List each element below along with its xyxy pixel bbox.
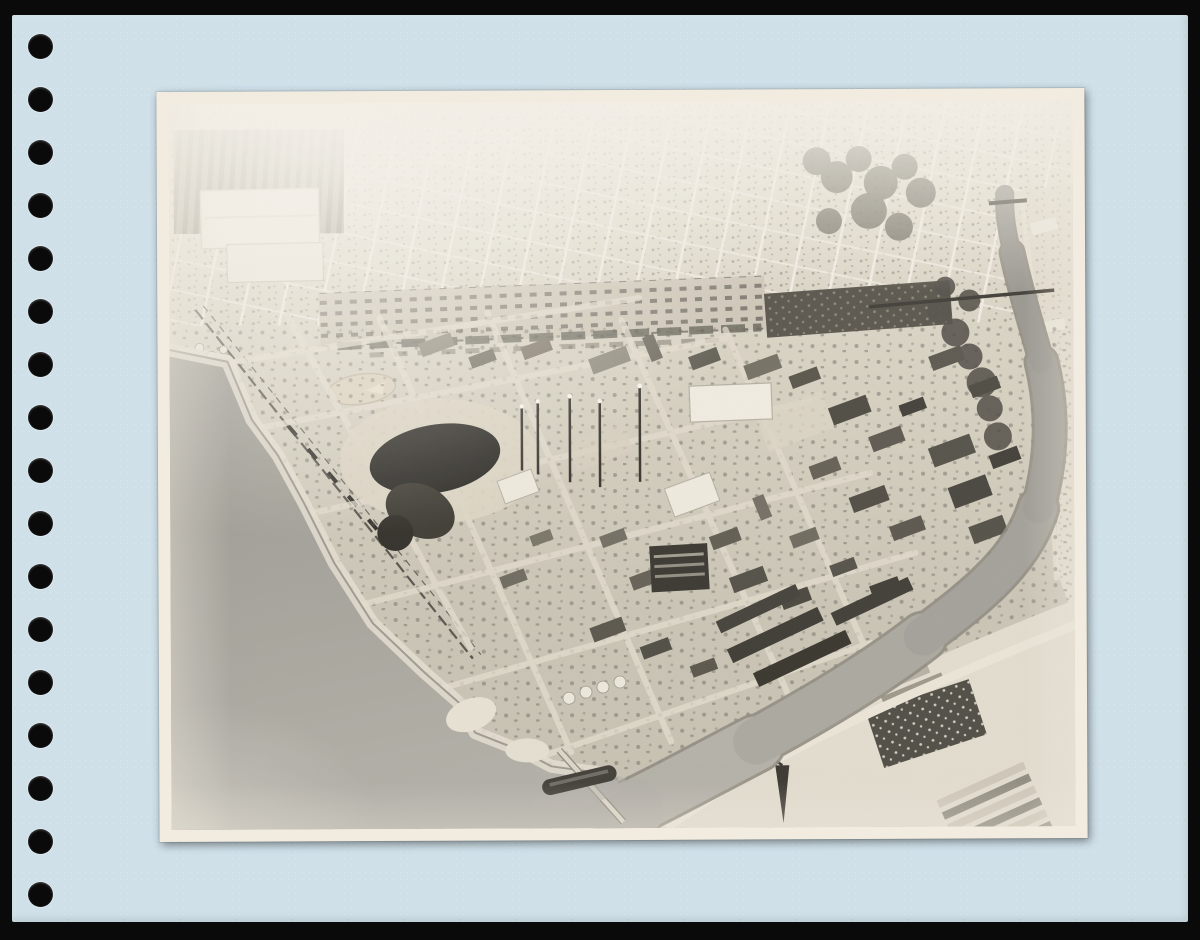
scan-background <box>0 0 1200 940</box>
binder-hole <box>28 299 53 324</box>
binder-hole <box>28 87 53 112</box>
binder-hole-column <box>12 15 68 922</box>
binder-hole <box>28 882 53 907</box>
binder-hole <box>28 564 53 589</box>
binder-hole <box>28 670 53 695</box>
aerial-photograph <box>168 100 1075 830</box>
binder-hole <box>28 829 53 854</box>
binder-hole <box>28 723 53 748</box>
photo-mat <box>156 88 1087 842</box>
binder-hole <box>28 246 53 271</box>
binder-hole <box>28 458 53 483</box>
binder-hole <box>28 617 53 642</box>
binder-hole <box>28 352 53 377</box>
binder-hole <box>28 140 53 165</box>
binder-hole <box>28 405 53 430</box>
binder-hole <box>28 34 53 59</box>
binder-hole <box>28 776 53 801</box>
photo-exposure-overlays <box>168 100 1075 830</box>
album-page <box>12 15 1188 922</box>
binder-hole <box>28 511 53 536</box>
binder-hole <box>28 193 53 218</box>
